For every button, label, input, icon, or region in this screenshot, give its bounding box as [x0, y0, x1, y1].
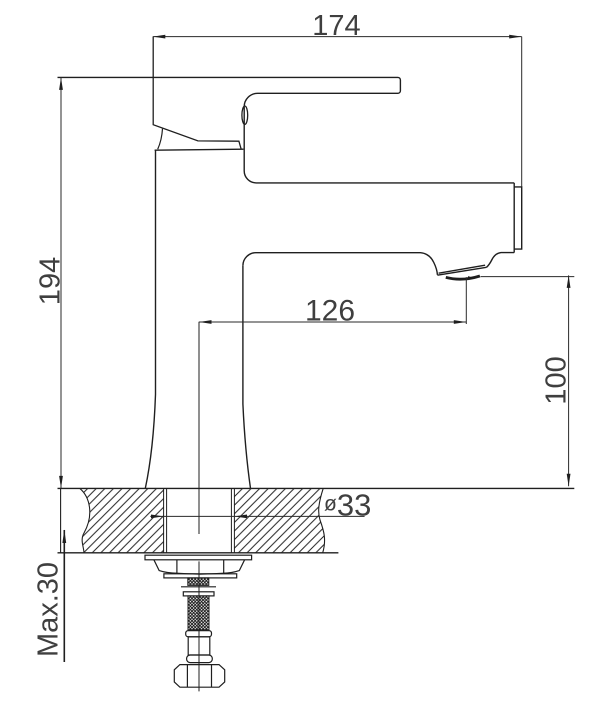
svg-text:174: 174 [312, 10, 360, 42]
svg-text:126: 126 [305, 295, 355, 328]
svg-text:Max.30: Max.30 [33, 562, 65, 657]
svg-text:100: 100 [541, 356, 573, 404]
svg-text:194: 194 [35, 257, 67, 305]
